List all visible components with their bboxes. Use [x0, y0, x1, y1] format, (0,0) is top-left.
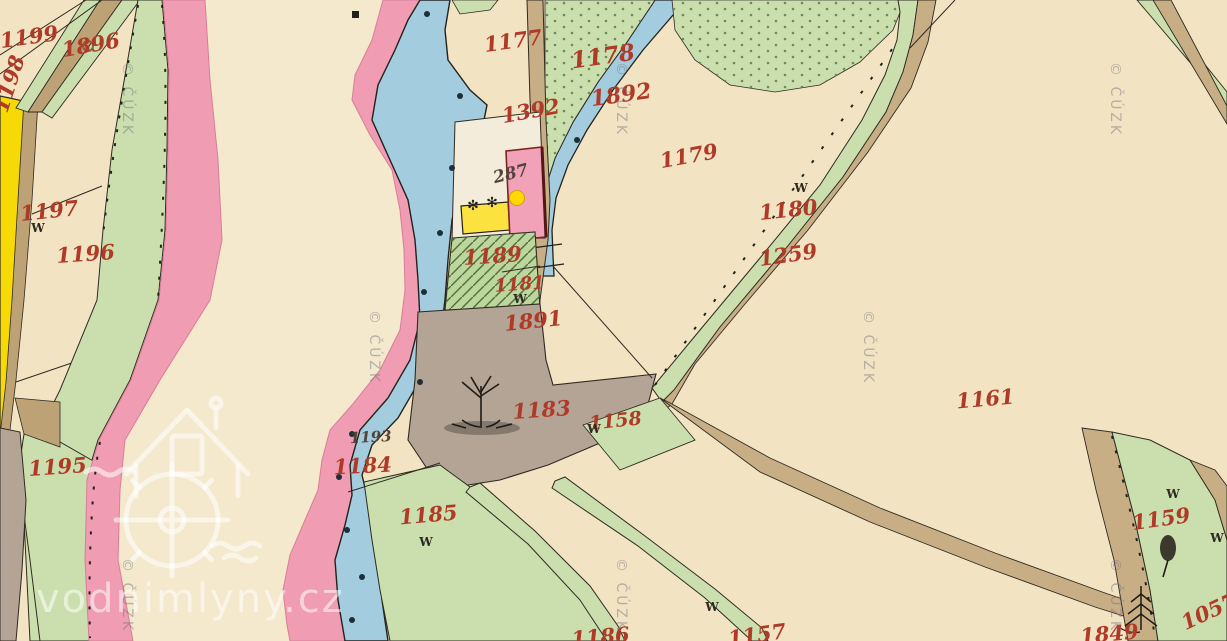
parcel-label: 1196	[55, 239, 115, 268]
boundary-stone-square	[352, 11, 359, 18]
parcel-label: 1183	[511, 395, 571, 424]
parcel-label: 1184	[333, 451, 393, 479]
parcel-label: 1195	[27, 452, 87, 481]
garden-tree-symbol: ✻	[486, 195, 498, 211]
cuzk-watermark: © ČÚZK	[613, 558, 631, 633]
mill-poi-marker[interactable]	[510, 191, 525, 206]
cuzk-watermark: © ČÚZK	[366, 310, 384, 385]
parcel-label: 1161	[955, 384, 1015, 414]
tree-shadow	[444, 421, 520, 435]
parcel-label: 1185	[398, 500, 458, 530]
cadastral-map-viewport[interactable]: 1199 1896 1198 1197 1196 1195 1177 1178 …	[0, 0, 1227, 641]
parcel-label: 1189	[462, 241, 522, 270]
cadastral-map-canvas[interactable]: 1199 1896 1198 1197 1196 1195 1177 1178 …	[0, 0, 1227, 641]
meadow-w-symbol: W	[1165, 487, 1180, 501]
cuzk-watermark: © ČÚZK	[119, 62, 137, 137]
garden-tree-symbol: ✻	[467, 198, 479, 214]
meadow-w-symbol: W	[793, 181, 808, 195]
cuzk-watermark: © ČÚZK	[1107, 558, 1125, 633]
meadow-w-symbol: W	[704, 600, 719, 614]
cuzk-watermark: © ČÚZK	[1107, 62, 1125, 137]
meadow-w-symbol: W	[30, 221, 45, 235]
meadow-w-symbol: W	[586, 422, 601, 436]
meadow-w-symbol: W	[418, 535, 433, 549]
meadow-w-symbol: W	[1209, 531, 1224, 545]
meadow-w-symbol: W	[512, 292, 527, 306]
cuzk-watermark: © ČÚZK	[860, 310, 878, 385]
vodnimlyny-text-watermark: vodnimlyny.cz	[36, 576, 345, 622]
parcel-label: 1193	[349, 427, 392, 447]
cuzk-watermark: © ČÚZK	[613, 62, 631, 137]
